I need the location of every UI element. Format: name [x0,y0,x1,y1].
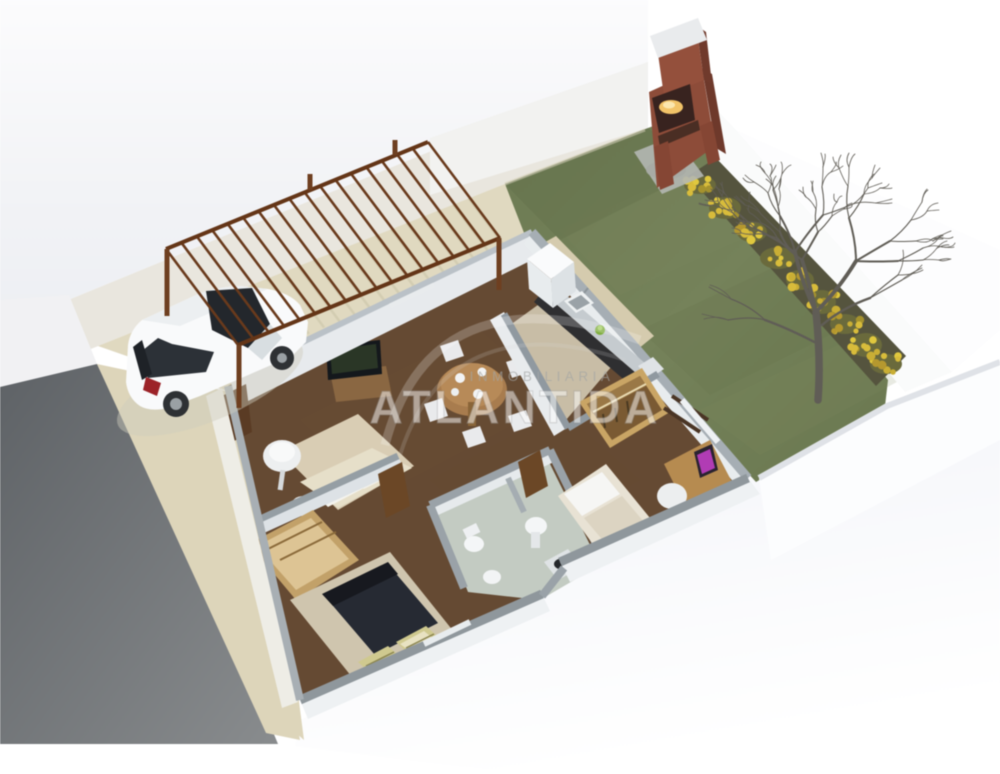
svg-text:ATLANTIDA: ATLANTIDA [369,381,660,433]
